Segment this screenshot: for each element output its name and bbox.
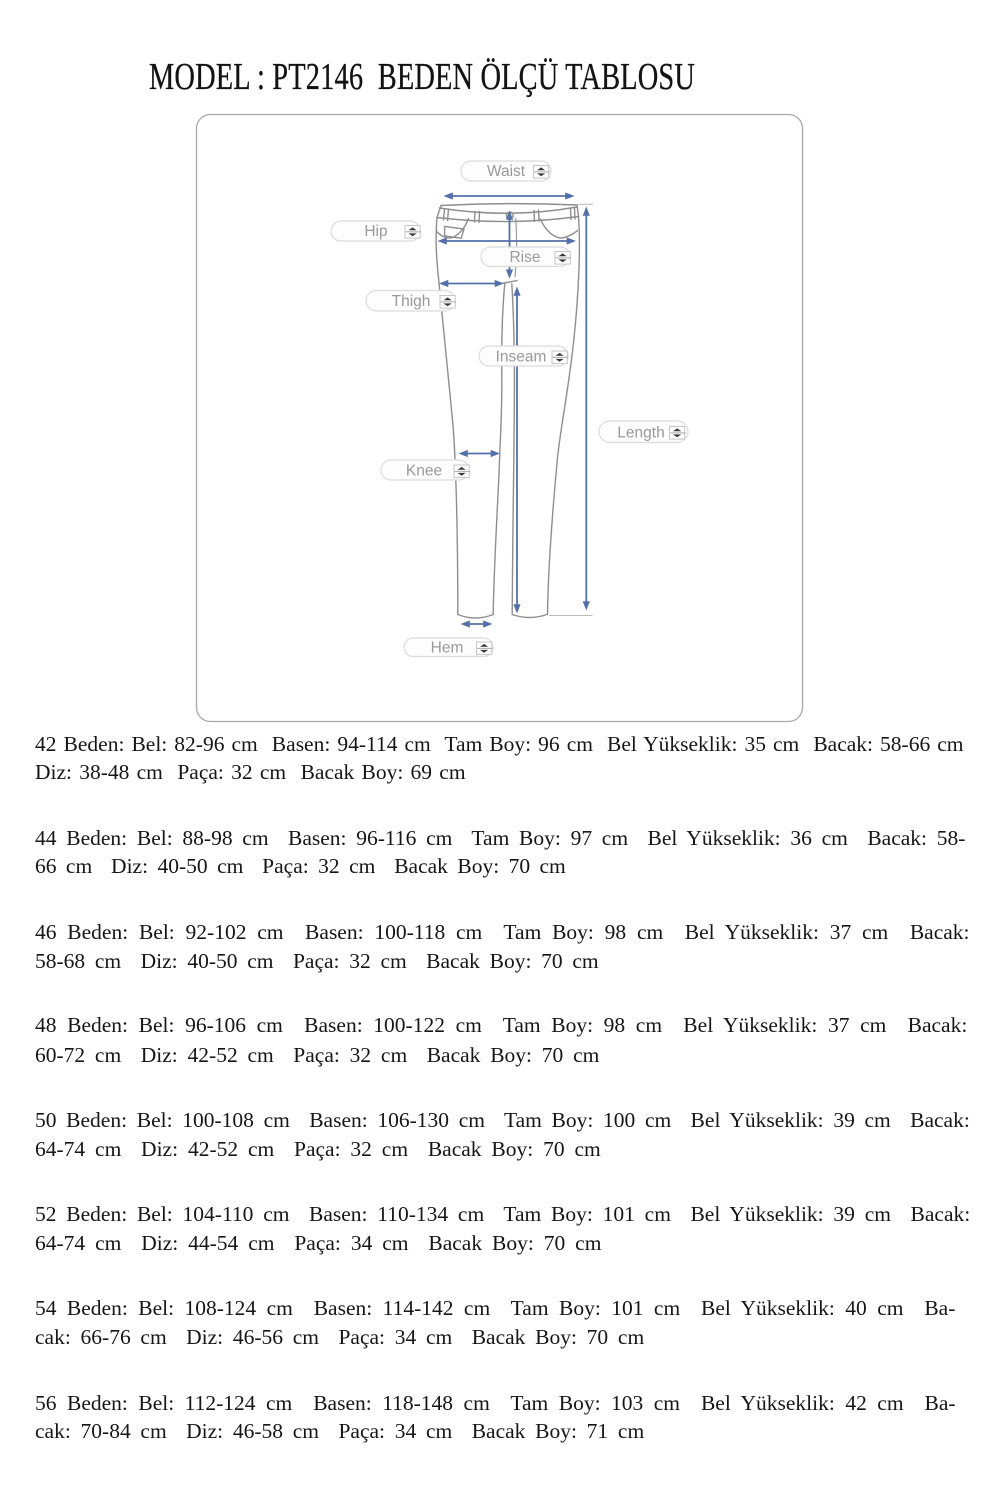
svg-text:Length: Length (617, 425, 664, 442)
svg-text:Thigh: Thigh (392, 293, 431, 310)
svg-text:Hip: Hip (364, 223, 387, 240)
svg-text:Rise: Rise (509, 249, 540, 266)
svg-text:Inseam: Inseam (496, 349, 547, 366)
svg-text:Waist: Waist (487, 163, 526, 180)
svg-text:Hem: Hem (431, 640, 464, 657)
svg-text:Knee: Knee (406, 463, 442, 480)
